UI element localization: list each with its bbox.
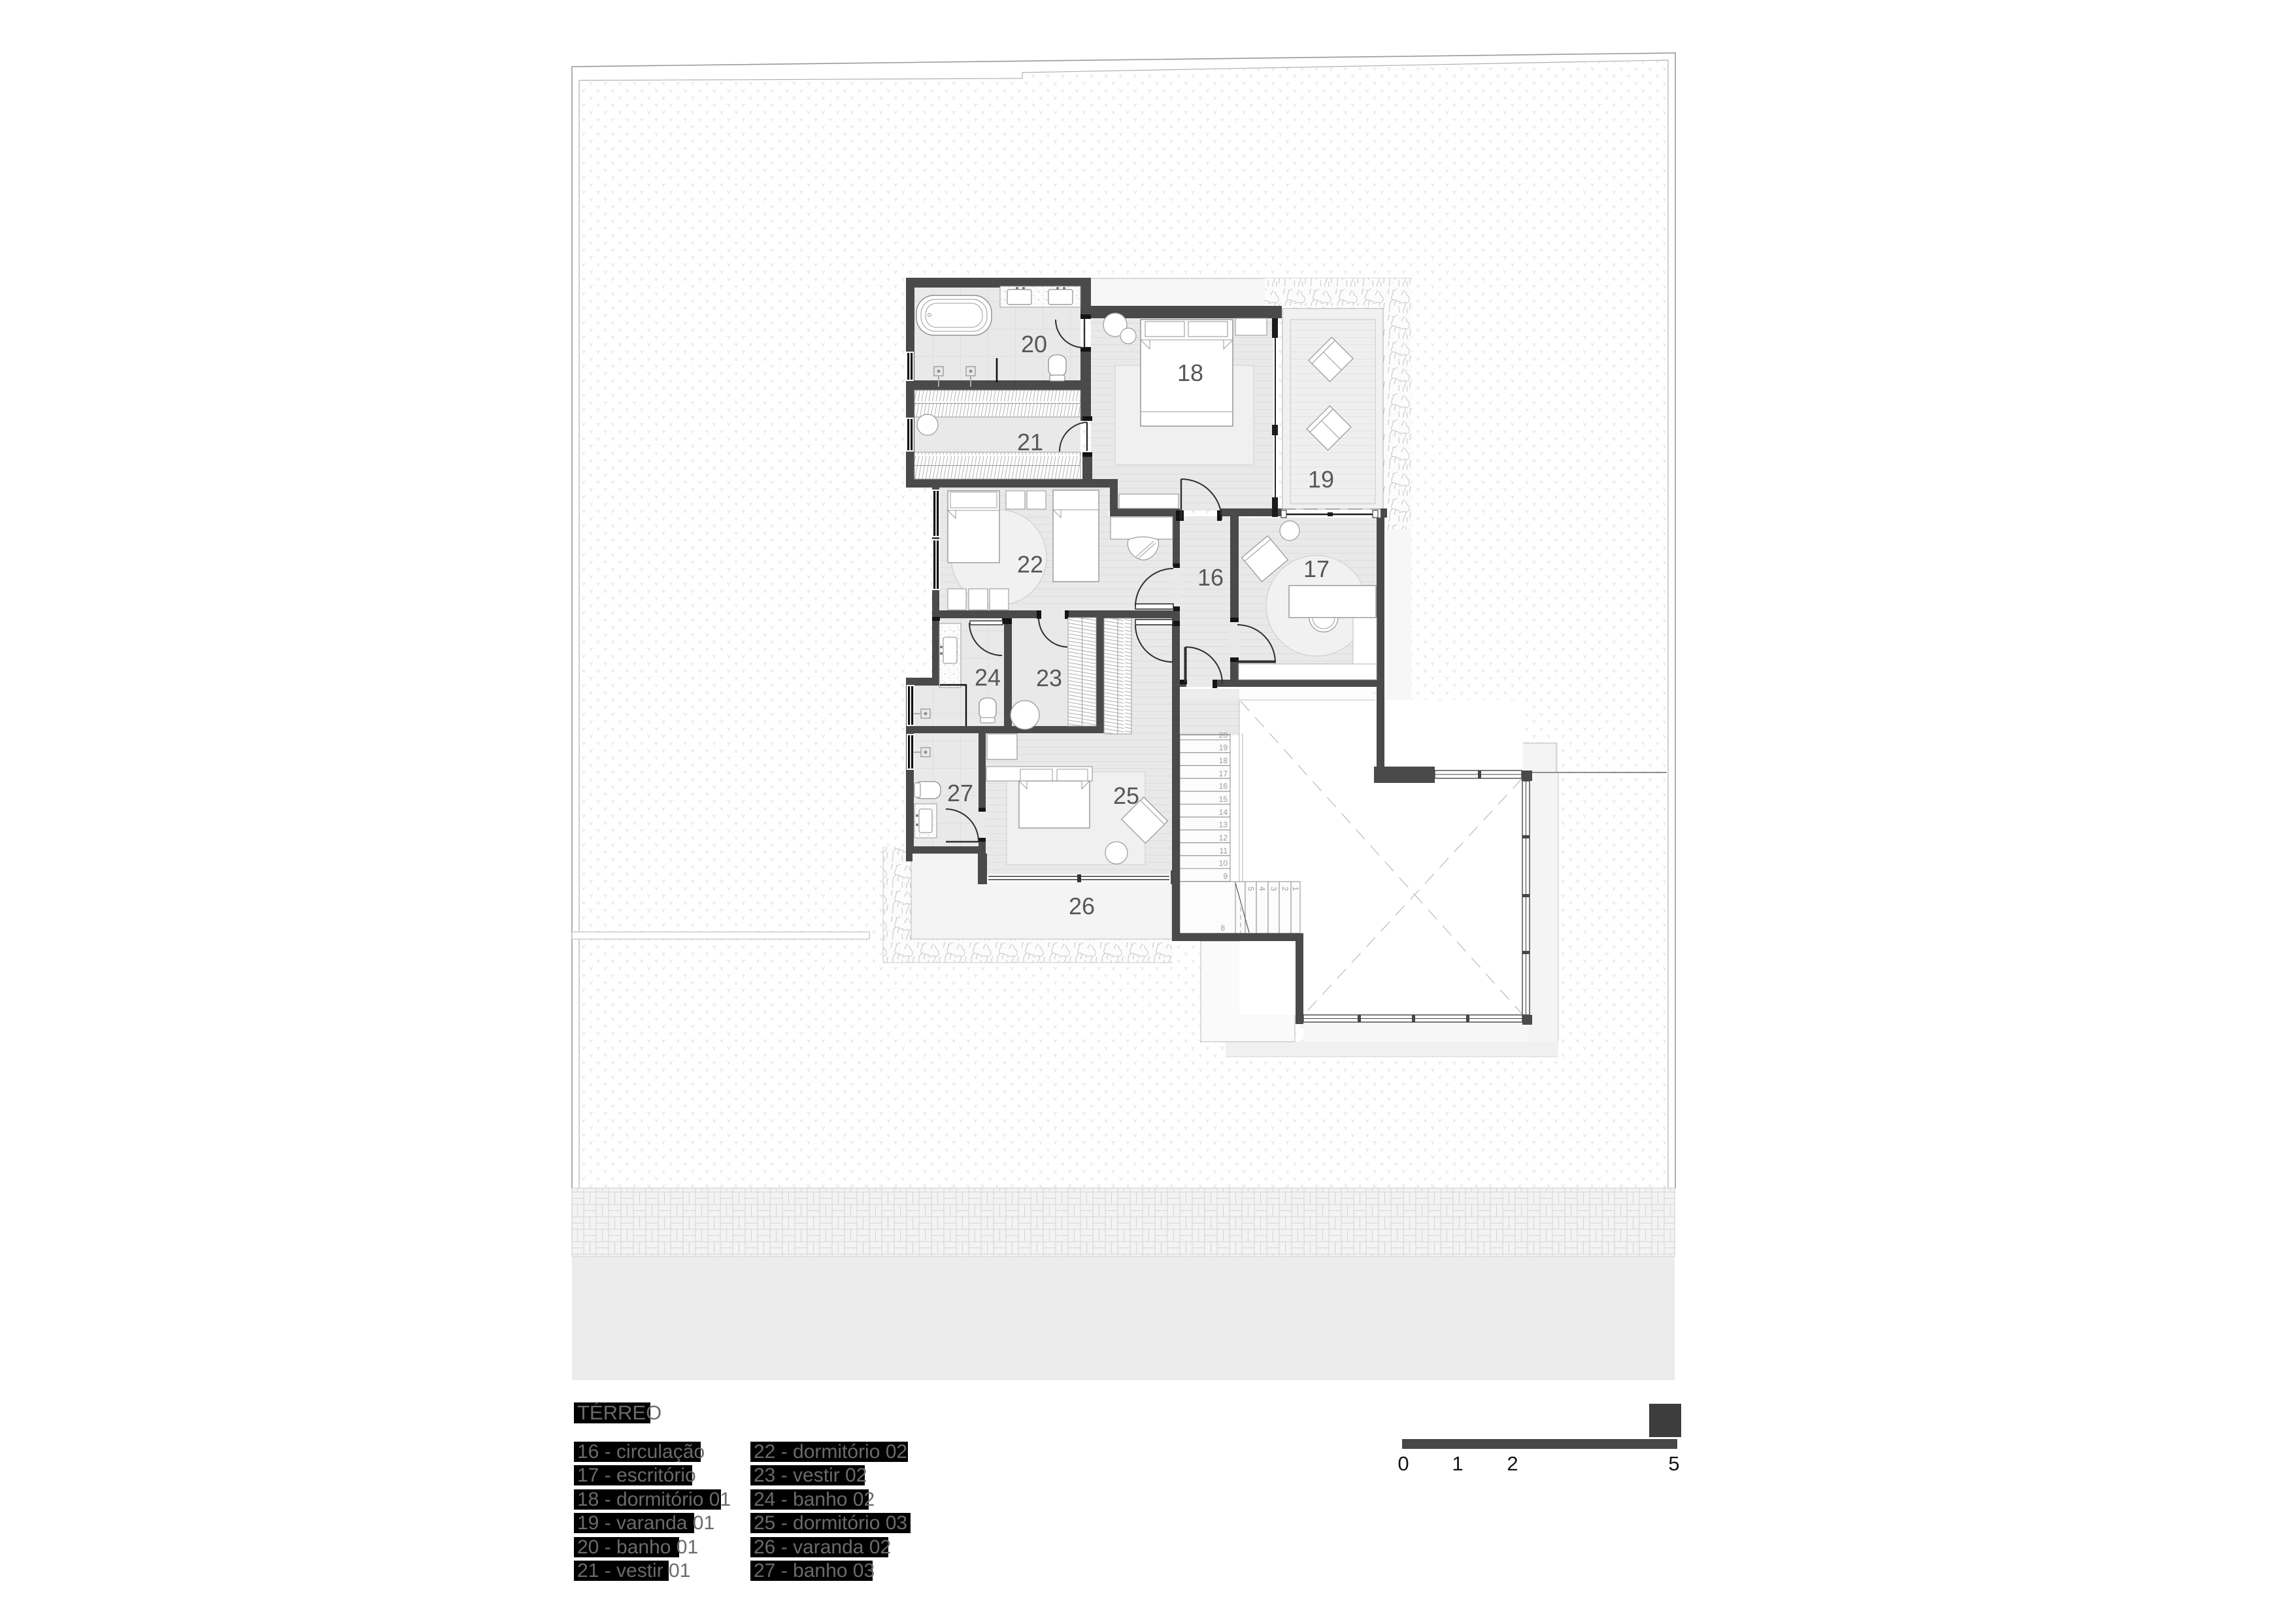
svg-text:17: 17 xyxy=(1303,555,1330,582)
svg-text:18: 18 xyxy=(1219,756,1228,765)
svg-text:16: 16 xyxy=(1197,564,1224,591)
svg-text:21: 21 xyxy=(1017,429,1043,456)
svg-text:25: 25 xyxy=(1113,782,1139,809)
svg-text:20: 20 xyxy=(1021,331,1047,357)
svg-text:25 - dormitório 03: 25 - dormitório 03 xyxy=(754,1512,907,1534)
svg-text:13: 13 xyxy=(1219,820,1228,829)
svg-text:18 - dormitório 01: 18 - dormitório 01 xyxy=(577,1489,731,1510)
svg-text:TÉRREO: TÉRREO xyxy=(577,1401,661,1424)
svg-text:17 - escritório: 17 - escritório xyxy=(577,1465,696,1486)
svg-text:1: 1 xyxy=(1452,1452,1463,1475)
svg-text:21 - vestir 01: 21 - vestir 01 xyxy=(577,1560,690,1582)
svg-text:19: 19 xyxy=(1219,743,1228,752)
svg-text:24 - banho 02: 24 - banho 02 xyxy=(754,1489,875,1510)
svg-text:17: 17 xyxy=(1219,769,1228,778)
svg-text:12: 12 xyxy=(1219,833,1228,842)
svg-text:18: 18 xyxy=(1177,359,1203,386)
svg-text:5: 5 xyxy=(1247,887,1256,891)
svg-text:14: 14 xyxy=(1219,808,1228,817)
svg-text:22: 22 xyxy=(1017,551,1043,578)
svg-text:1: 1 xyxy=(1291,887,1300,891)
svg-text:24: 24 xyxy=(975,664,1001,691)
svg-text:15: 15 xyxy=(1219,795,1228,804)
svg-text:0: 0 xyxy=(1398,1452,1409,1475)
svg-text:16 - circulação: 16 - circulação xyxy=(577,1441,705,1463)
svg-text:19 - varanda 01: 19 - varanda 01 xyxy=(577,1512,714,1534)
svg-text:4: 4 xyxy=(1258,887,1267,891)
svg-text:2: 2 xyxy=(1280,887,1290,891)
svg-text:10: 10 xyxy=(1219,859,1228,868)
svg-text:26 - varanda 02: 26 - varanda 02 xyxy=(754,1536,891,1558)
svg-text:23 - vestir 02: 23 - vestir 02 xyxy=(754,1465,867,1486)
svg-text:3: 3 xyxy=(1269,887,1279,891)
svg-text:19: 19 xyxy=(1308,466,1334,493)
svg-text:11: 11 xyxy=(1220,846,1228,855)
svg-text:8: 8 xyxy=(1220,923,1225,933)
svg-text:27 - banho 03: 27 - banho 03 xyxy=(754,1560,875,1582)
svg-text:9: 9 xyxy=(1223,872,1228,881)
svg-text:26: 26 xyxy=(1069,893,1095,920)
svg-text:23: 23 xyxy=(1036,665,1062,691)
svg-text:20: 20 xyxy=(1219,731,1228,740)
svg-text:22 - dormitório 02: 22 - dormitório 02 xyxy=(754,1441,907,1463)
svg-text:2: 2 xyxy=(1507,1452,1518,1475)
svg-text:20 - banho 01: 20 - banho 01 xyxy=(577,1536,698,1558)
svg-text:27: 27 xyxy=(947,780,973,806)
svg-text:16: 16 xyxy=(1219,782,1228,791)
svg-text:5: 5 xyxy=(1668,1452,1679,1475)
